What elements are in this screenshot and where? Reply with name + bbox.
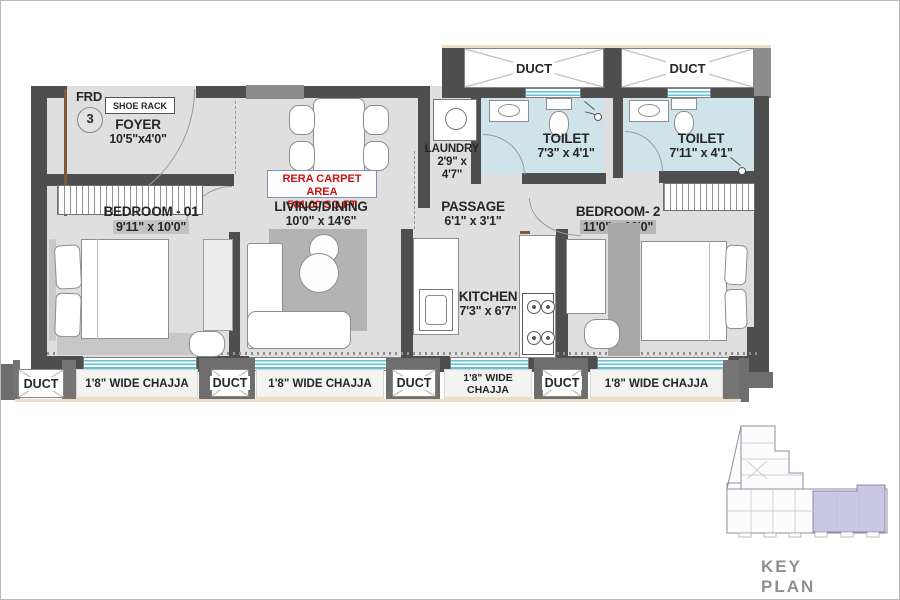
duct-bottom-1: DUCT xyxy=(18,369,64,398)
chajja-3-line-2: CHAJJA xyxy=(463,384,513,396)
duct-top-1-label: DUCT xyxy=(513,61,555,76)
bedroom-2-name: BEDROOM- 2 xyxy=(576,204,660,219)
washing-machine-drum-icon xyxy=(445,108,467,130)
chajja-1-label: 1'8" WIDE CHAJJA xyxy=(85,378,188,390)
dining-chair-1 xyxy=(289,105,315,135)
living-passage-divider xyxy=(414,151,415,229)
toilet-2-name: TOILET xyxy=(678,131,725,146)
duct-bottom-2: DUCT xyxy=(211,369,249,397)
bedroom-2-chair xyxy=(584,319,620,349)
duct-bottom-4-label: DUCT xyxy=(542,376,583,390)
bedroom-1-dresser xyxy=(203,239,233,331)
wall-top-corner xyxy=(31,86,67,98)
duct-shaft-top-2: DUCT xyxy=(621,48,754,88)
laundry-dims-2: 4'7" xyxy=(442,169,462,182)
bed-1-sheet-line xyxy=(97,239,98,339)
duct-top-2-label: DUCT xyxy=(666,61,708,76)
wall-top-sill xyxy=(246,85,304,99)
toilet-1-dims: 7'3" x 4'1" xyxy=(537,146,594,160)
chajja-4-label: 1'8" WIDE CHAJJA xyxy=(605,378,708,390)
bed-1-mattress xyxy=(81,239,169,339)
toilet-2-shower-icon xyxy=(738,167,746,175)
dining-chair-4 xyxy=(363,141,389,171)
wall-kitchen-left xyxy=(401,229,413,359)
key-plan-map xyxy=(711,421,900,556)
coffee-table-large xyxy=(299,253,339,293)
chajja-bottom-trim xyxy=(15,399,741,402)
living-dining-name: LIVING/DINING xyxy=(274,199,367,214)
toilet-2-dims: 7'11" x 4'1" xyxy=(669,146,732,160)
chajja-3-line-1: 1'8" WIDE xyxy=(463,372,513,384)
wall-top-t2b xyxy=(711,88,754,98)
wall-left xyxy=(31,86,47,367)
stove-burner-1 xyxy=(527,300,541,314)
toilet-1-basin-bowl xyxy=(498,104,520,117)
floor-plan-canvas: DUCT DUCT FRD 3 SHOE RAC xyxy=(0,0,900,600)
sofa-seat xyxy=(247,311,351,349)
duct-bottom-1-label: DUCT xyxy=(21,377,62,391)
wall-toilet-2-left xyxy=(613,96,623,178)
bed-2-mattress xyxy=(641,241,727,341)
bed-1-pillow-2 xyxy=(54,293,82,338)
bedroom-1-pouf xyxy=(189,331,225,357)
chajja-2-label: 1'8" WIDE CHAJJA xyxy=(268,378,371,390)
chajja-3-label: 1'8" WIDE CHAJJA xyxy=(463,372,513,396)
foyer-living-divider xyxy=(235,101,236,174)
duct-bottom-4: DUCT xyxy=(542,369,582,397)
duct-shaft-top-1: DUCT xyxy=(464,48,604,88)
bed-2-sheet-line xyxy=(709,241,710,341)
duct-1-col-right xyxy=(62,360,76,399)
rera-carpet-area-box: RERA CARPET AREA 581.00 SQ.FT xyxy=(267,170,377,198)
chajja-right-stub-b xyxy=(749,372,773,388)
living-dining-dims: 10'0" x 14'6" xyxy=(286,214,357,228)
dining-chair-2 xyxy=(289,141,315,171)
key-plan-caption: KEY PLAN xyxy=(761,557,853,597)
dining-table xyxy=(313,98,365,176)
toilet-2-basin-bowl xyxy=(638,104,660,117)
passage-name: PASSAGE xyxy=(441,199,505,214)
chajja-4: 1'8" WIDE CHAJJA xyxy=(590,369,723,399)
foyer-dims: 10'5"x4'0" xyxy=(109,132,167,146)
wall-toilet-1-bottom xyxy=(522,173,606,184)
stove-burner-4 xyxy=(541,331,555,345)
kitchen-dims: 7'3" x 6'7" xyxy=(459,304,516,318)
chajja-3: 1'8" WIDE CHAJJA xyxy=(444,369,532,399)
chajja-right-stub-a xyxy=(739,358,749,402)
wall-top-t1b xyxy=(581,88,604,98)
bedroom-2-desk xyxy=(566,239,606,314)
shoe-rack-label: SHOE RACK xyxy=(113,101,167,111)
stove-burner-3 xyxy=(527,331,541,345)
passage-dims: 6'1" x 3'1" xyxy=(444,214,501,228)
wall-duct-col-b xyxy=(604,48,621,98)
bedroom-1-dims: 9'11" x 10'0" xyxy=(113,220,189,234)
door-number: 3 xyxy=(86,112,93,127)
duct-bottom-2-label: DUCT xyxy=(210,376,251,390)
key-plan-tower xyxy=(741,426,803,489)
bed-2-pillow-1 xyxy=(724,244,748,285)
duct-bottom-3: DUCT xyxy=(392,369,436,397)
bedroom-2-door-leaf xyxy=(520,231,530,234)
toilet-1-name: TOILET xyxy=(543,131,590,146)
wall-duct-col-a xyxy=(442,48,464,98)
bed-2-pillow-2 xyxy=(724,289,747,330)
toilet-1-shower-icon xyxy=(594,113,602,121)
chajja-2: 1'8" WIDE CHAJJA xyxy=(256,369,384,399)
key-plan-highlighted-unit xyxy=(813,485,885,532)
bedroom-2-wardrobe xyxy=(663,183,755,211)
bedroom-1-name: BEDROOM - 01 xyxy=(103,204,198,219)
bed-1-pillow-1 xyxy=(54,244,82,289)
wall-right xyxy=(754,96,769,358)
frd-label: FRD xyxy=(76,90,102,105)
toilet-2-window xyxy=(667,88,711,98)
stove-burner-2 xyxy=(541,300,555,314)
dining-chair-3 xyxy=(363,105,389,135)
duct-bottom-3-label: DUCT xyxy=(394,376,435,390)
kitchen-name: KITCHEN xyxy=(459,289,518,304)
chajja-1: 1'8" WIDE CHAJJA xyxy=(76,369,198,399)
toilet-2-wc-tank-icon xyxy=(671,98,697,110)
toilet-1-wc-tank-icon xyxy=(546,98,572,110)
laundry-dims-1: 2'9" x xyxy=(437,156,466,169)
rera-line-1: RERA CARPET AREA xyxy=(268,173,376,199)
wall-top-t2a xyxy=(621,88,667,98)
laundry-name: LAUNDRY xyxy=(425,143,479,156)
foyer-name: FOYER xyxy=(115,117,161,132)
kitchen-sink-bowl xyxy=(425,295,447,325)
toilet-1-window xyxy=(525,88,581,98)
wall-duct-col-c xyxy=(754,48,771,98)
wall-top-main xyxy=(196,86,418,98)
shoe-rack-box: SHOE RACK xyxy=(105,97,175,114)
